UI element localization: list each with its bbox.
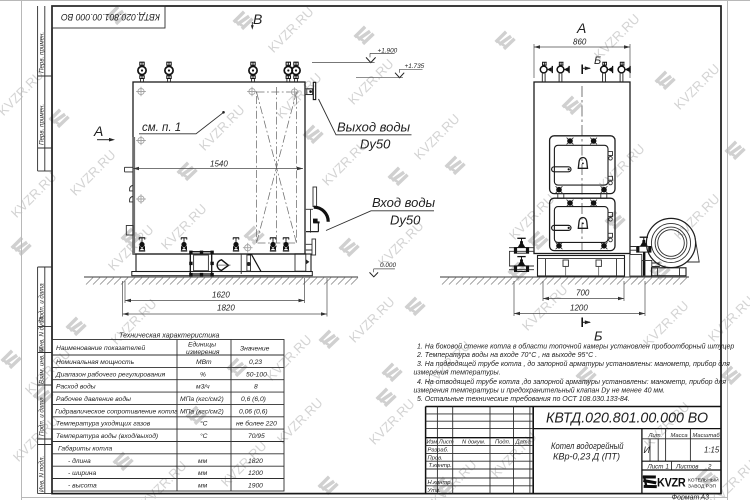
svg-text:И: И xyxy=(644,445,651,455)
svg-text:Н.контр.: Н.контр. xyxy=(428,480,453,486)
svg-text:Лист: Лист xyxy=(647,463,664,470)
svg-text:KVZR.RU: KVZR.RU xyxy=(671,191,723,243)
svg-text:KVZR.RU: KVZR.RU xyxy=(519,282,571,334)
svg-text:МПа (кгс/см2): МПа (кгс/см2) xyxy=(180,396,224,403)
svg-text:KVZR.RU: KVZR.RU xyxy=(273,70,325,122)
svg-text:Температура воды (вход/выход): Температура воды (вход/выход) xyxy=(56,432,158,440)
svg-text:1620: 1620 xyxy=(212,291,230,300)
svg-text:Котел водогрейный: Котел водогрейный xyxy=(551,441,624,451)
svg-text:КВр-0,23 Д (ПТ): КВр-0,23 Д (ПТ) xyxy=(553,452,620,462)
svg-text:КВТД.020.801.00.000 ВО: КВТД.020.801.00.000 ВО xyxy=(61,12,160,22)
svg-text:см. п. 1: см. п. 1 xyxy=(142,122,181,134)
svg-text:мм: мм xyxy=(198,470,208,477)
svg-text:измерения температуры и предох: измерения температуры и предохранительны… xyxy=(414,386,666,394)
svg-text:700: 700 xyxy=(576,289,590,298)
svg-text:Dy50: Dy50 xyxy=(390,213,421,228)
svg-text:Взам. инв. N: Взам. инв. N xyxy=(39,347,46,384)
svg-text:Расход воды: Расход воды xyxy=(56,383,96,391)
svg-text:1540: 1540 xyxy=(210,160,228,169)
svg-text:Б: Б xyxy=(594,329,603,344)
svg-text:МПа (кгс/см2): МПа (кгс/см2) xyxy=(180,408,224,415)
svg-text:Единицы: Единицы xyxy=(188,341,216,349)
svg-text:измерения: измерения xyxy=(186,349,220,356)
svg-text:3. На подводящей трубе котла: 3. На подводящей трубе котла , до запорн… xyxy=(417,360,730,368)
svg-text:0.000: 0.000 xyxy=(380,262,396,269)
svg-text:м3/ч: м3/ч xyxy=(196,384,210,391)
svg-text:0,23: 0,23 xyxy=(249,359,262,366)
svg-text:1200: 1200 xyxy=(570,304,588,313)
svg-text:860: 860 xyxy=(573,38,587,47)
svg-text:Изм: Изм xyxy=(427,440,438,446)
svg-text:Лит.: Лит. xyxy=(648,433,663,439)
svg-text:Подп. и дата: Подп. и дата xyxy=(39,397,46,436)
svg-text:Инв. N дубл.: Инв. N дубл. xyxy=(39,315,46,351)
svg-text:Формат: Формат xyxy=(672,495,700,500)
svg-text:- ширина: - ширина xyxy=(68,470,96,477)
svg-text:KVZR.RU: KVZR.RU xyxy=(67,147,119,199)
svg-text:KVZR.RU: KVZR.RU xyxy=(366,396,418,448)
svg-text:Значение: Значение xyxy=(240,346,270,353)
svg-text:1. На боковой стенке котла в: 1. На боковой стенке котла в области топ… xyxy=(417,342,734,350)
svg-text:Перв. примен.: Перв. примен. xyxy=(39,32,46,73)
svg-text:Выход воды: Выход воды xyxy=(337,120,411,135)
svg-text:А: А xyxy=(576,20,586,36)
svg-text:Техническая характеристика: Техническая характеристика xyxy=(119,332,219,340)
svg-text:KVZR.RU: KVZR.RU xyxy=(345,56,397,108)
svg-text:- длина: - длина xyxy=(68,457,91,465)
svg-text:Б: Б xyxy=(594,55,601,67)
svg-text:А3: А3 xyxy=(700,495,710,500)
svg-text:50-100: 50-100 xyxy=(246,371,267,378)
svg-text:Т.контр.: Т.контр. xyxy=(429,463,452,469)
svg-text:8: 8 xyxy=(254,384,258,391)
svg-text:мм: мм xyxy=(198,483,208,490)
svg-text:Масштаб: Масштаб xyxy=(693,433,721,439)
svg-text:KVZR: KVZR xyxy=(657,476,686,490)
svg-text:Перв. примен.: Перв. примен. xyxy=(39,104,46,145)
svg-text:KVZR.RU: KVZR.RU xyxy=(640,298,692,350)
svg-text:5. Остальные технические треб: 5. Остальные технические требования по О… xyxy=(417,395,630,403)
svg-text:Наименование показателей: Наименование показателей xyxy=(56,344,145,352)
svg-text:4. На отводящей трубе котла ,: 4. На отводящей трубе котла ,до запорной… xyxy=(417,378,726,386)
svg-text:1: 1 xyxy=(666,463,669,470)
svg-text:0,6 (6,0): 0,6 (6,0) xyxy=(241,396,266,403)
svg-text:- высота: - высота xyxy=(68,483,97,490)
svg-text:Разраб.: Разраб. xyxy=(428,448,449,454)
svg-text:KVZR.RU: KVZR.RU xyxy=(274,395,326,447)
svg-text:1820: 1820 xyxy=(248,458,263,465)
svg-text:КВТД.020.801.00.000 ВО: КВТД.020.801.00.000 ВО xyxy=(546,410,708,427)
svg-text:KVZR.RU: KVZR.RU xyxy=(346,294,398,346)
svg-text:1200: 1200 xyxy=(248,470,263,477)
svg-text:Номинальная мощность: Номинальная мощность xyxy=(56,359,135,366)
svg-text:не более 220: не более 220 xyxy=(236,420,277,428)
svg-text:мм: мм xyxy=(198,458,208,465)
svg-text:Дата: Дата xyxy=(515,440,532,446)
svg-text:2. Температура воды на входе: 2. Температура воды на входе 70°С , на в… xyxy=(416,351,597,359)
svg-text:Листов: Листов xyxy=(675,463,699,470)
svg-text:ЗАВОД РЭП: ЗАВОД РЭП xyxy=(688,484,716,490)
svg-text:0,06 (0,6): 0,06 (0,6) xyxy=(239,408,268,415)
svg-text:Пров.: Пров. xyxy=(428,455,443,461)
svg-text:Вход воды: Вход воды xyxy=(372,195,436,210)
svg-text:А: А xyxy=(93,123,103,139)
svg-text:KVZR.RU: KVZR.RU xyxy=(411,111,463,163)
svg-text:МВт: МВт xyxy=(196,359,212,366)
svg-text:°С: °С xyxy=(200,432,208,440)
svg-text:N докум.: N докум. xyxy=(462,440,485,446)
svg-text:1820: 1820 xyxy=(217,304,235,313)
svg-text:Подп.: Подп. xyxy=(495,440,510,446)
svg-text:°С: °С xyxy=(200,420,208,428)
svg-text:измерения температуры.: измерения температуры. xyxy=(414,369,501,376)
svg-text:1900: 1900 xyxy=(248,483,263,490)
svg-text:Лист: Лист xyxy=(438,440,454,446)
svg-text:Утв.: Утв. xyxy=(427,488,441,494)
svg-text:KVZR.RU: KVZR.RU xyxy=(10,413,62,465)
svg-text:Габариты котла: Габариты котла xyxy=(58,444,112,452)
svg-text:2: 2 xyxy=(707,463,712,470)
svg-text:Масса: Масса xyxy=(671,433,689,439)
svg-text:Температура уходящих газов: Температура уходящих газов xyxy=(56,420,151,428)
svg-text:В: В xyxy=(253,11,262,27)
svg-text:70/95: 70/95 xyxy=(248,433,265,440)
svg-text:Рабочее давление воды: Рабочее давление воды xyxy=(56,395,131,403)
svg-text:%: % xyxy=(200,371,206,378)
svg-text:Диапазон рабочего регулировани: Диапазон рабочего регулирования xyxy=(55,370,166,378)
svg-text:Гидравлическое сопротивление к: Гидравлическое сопротивление котла xyxy=(55,407,178,415)
svg-text:KVZR.RU: KVZR.RU xyxy=(671,61,723,113)
svg-text:Dy50: Dy50 xyxy=(360,137,391,152)
svg-text:1:15: 1:15 xyxy=(704,446,720,455)
svg-text:KVZR.RU: KVZR.RU xyxy=(265,4,317,56)
svg-text:Инв. N подл.: Инв. N подл. xyxy=(39,456,46,492)
